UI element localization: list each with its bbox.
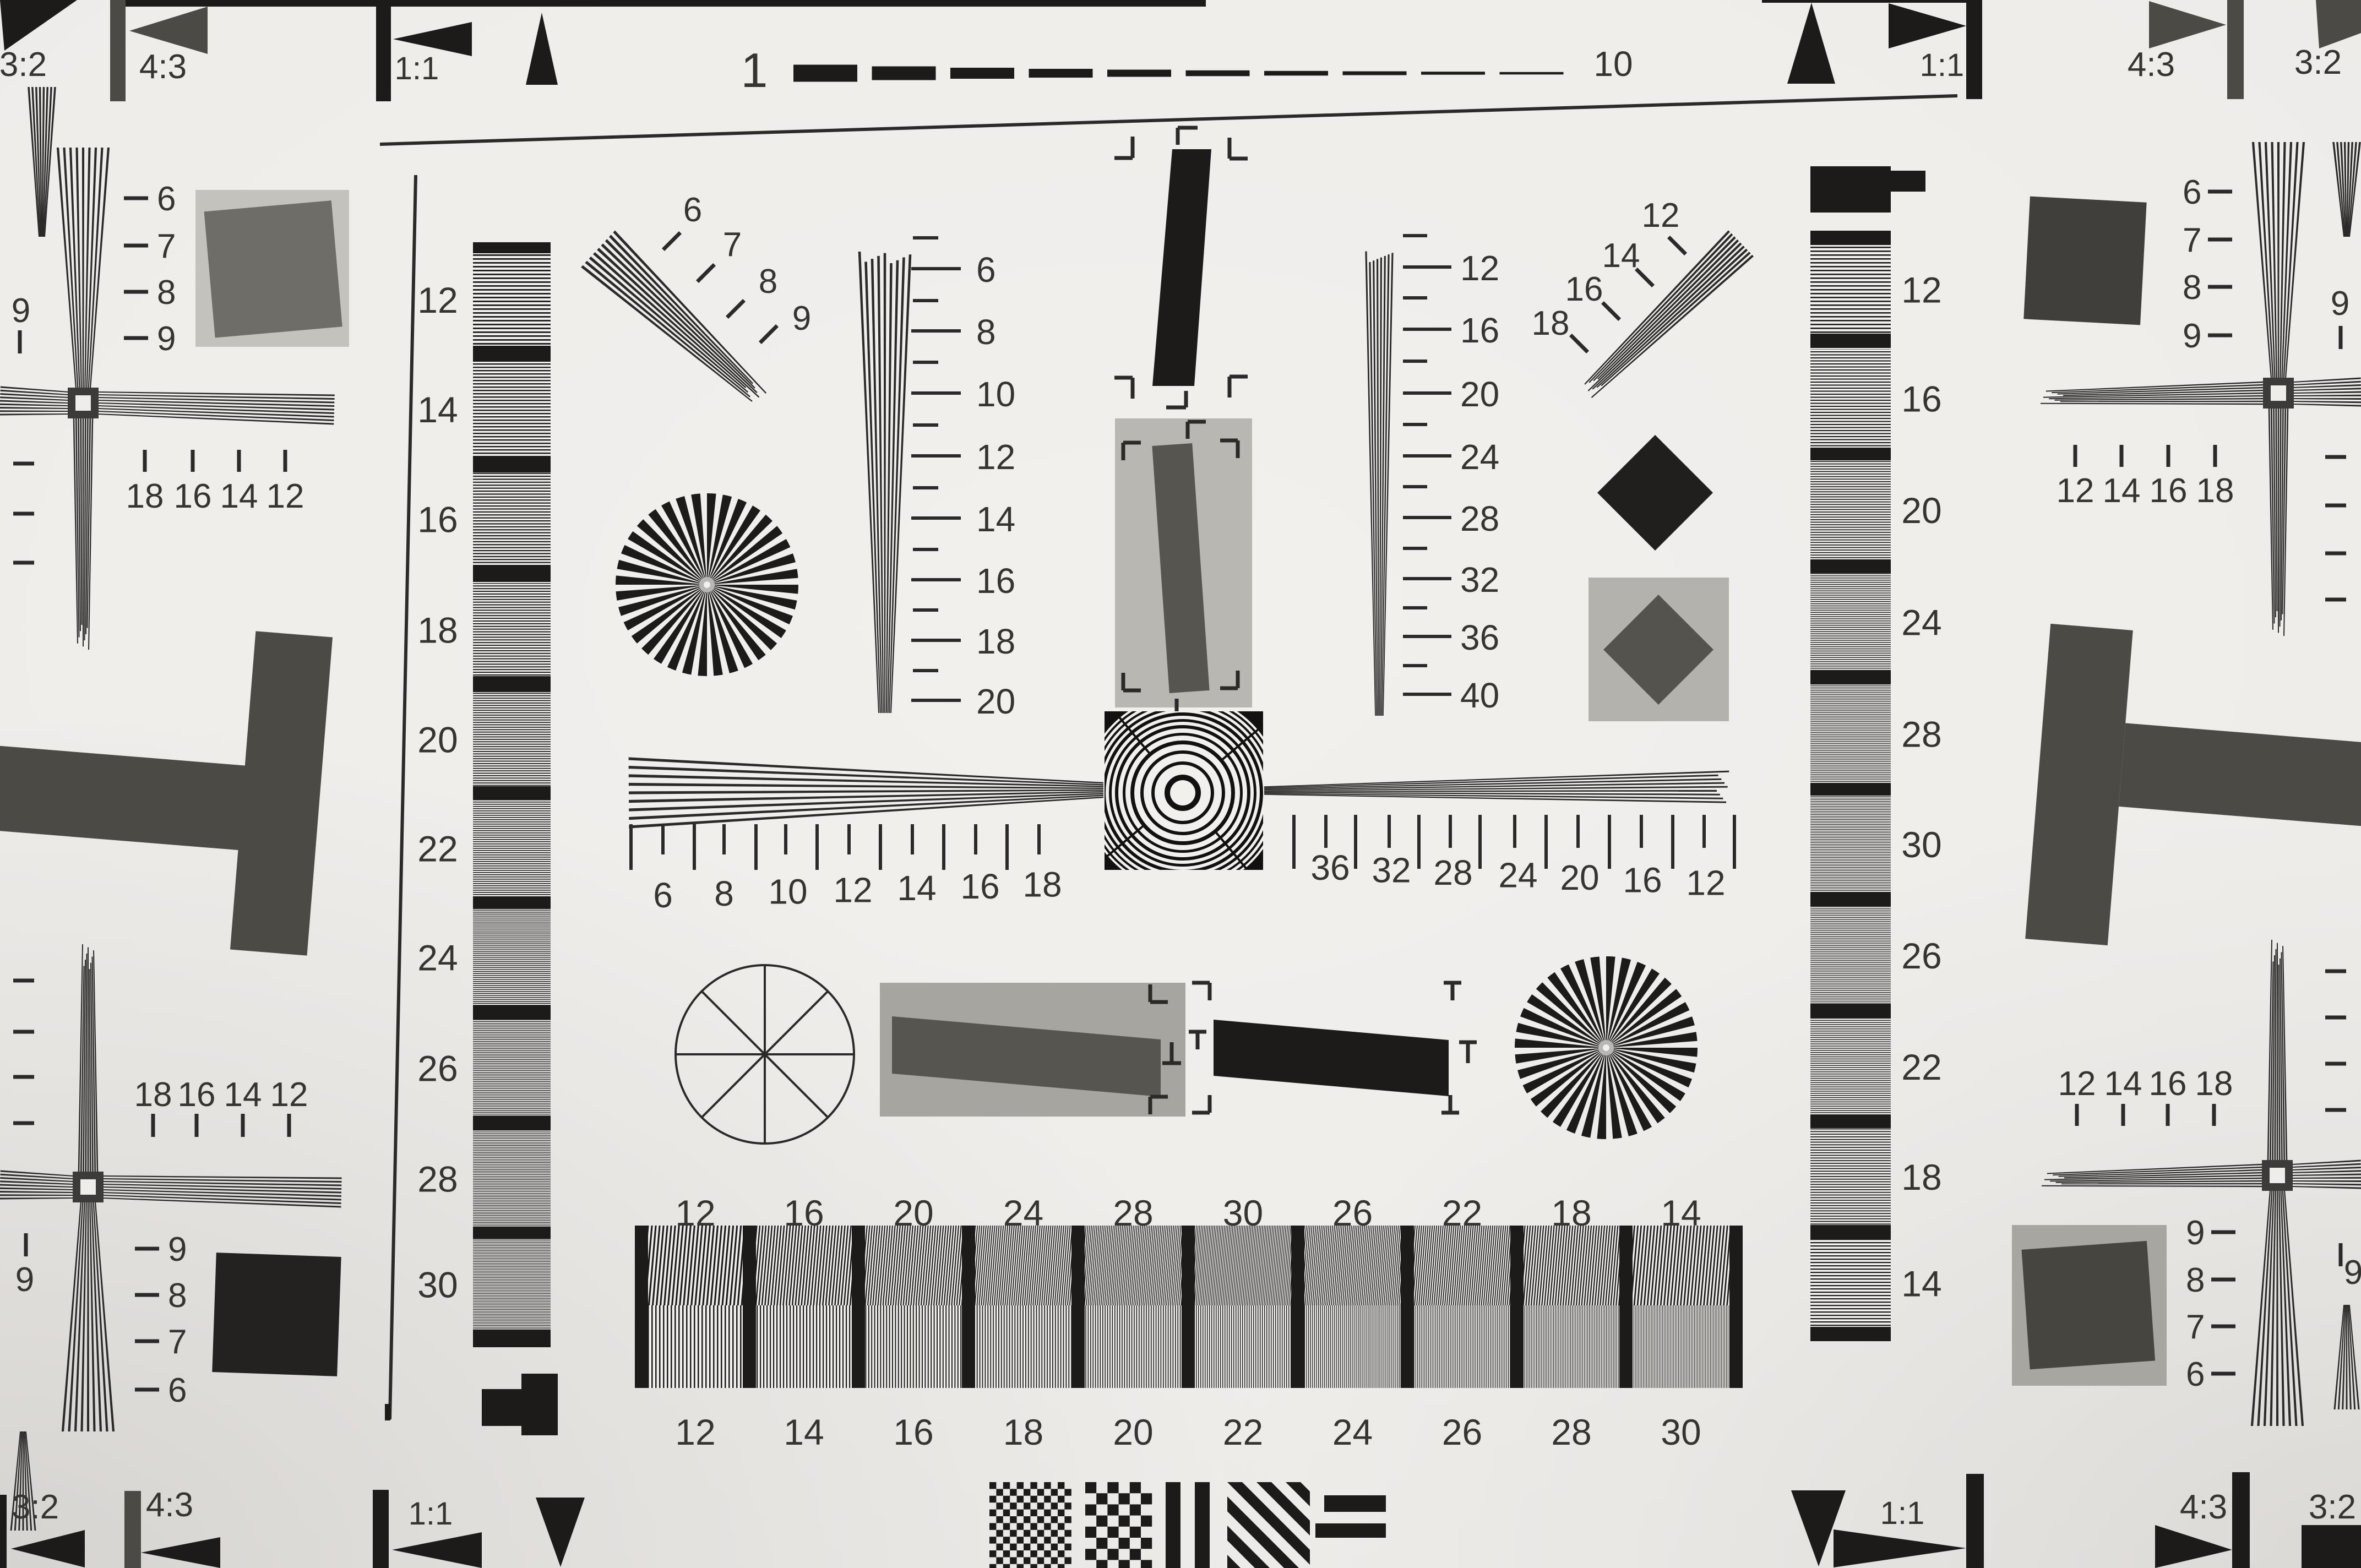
svg-text:16: 16 [784,1193,824,1233]
svg-text:18: 18 [1532,304,1570,342]
svg-text:6: 6 [653,875,673,915]
svg-text:4:3: 4:3 [146,1486,193,1524]
svg-text:6: 6 [683,191,702,229]
svg-text:9: 9 [12,292,30,330]
svg-text:1:1: 1:1 [409,1496,453,1532]
svg-text:12: 12 [270,1076,308,1114]
svg-text:3:2: 3:2 [2309,1488,2356,1526]
svg-text:6: 6 [2183,173,2201,211]
svg-text:4:3: 4:3 [2180,1488,2227,1526]
svg-text:9: 9 [15,1261,34,1299]
svg-text:20: 20 [1901,490,1941,531]
svg-text:26: 26 [417,1048,458,1089]
svg-text:8: 8 [2183,269,2201,307]
svg-text:16: 16 [1623,861,1662,900]
svg-text:1:1: 1:1 [1880,1495,1925,1531]
svg-text:26: 26 [1332,1193,1373,1233]
svg-text:12: 12 [976,437,1015,477]
svg-text:14: 14 [976,499,1015,539]
svg-text:22: 22 [417,829,458,869]
svg-text:18: 18 [2196,472,2234,510]
svg-text:14: 14 [897,868,936,908]
svg-text:20: 20 [1113,1412,1153,1452]
svg-text:28: 28 [417,1159,458,1200]
svg-text:8: 8 [2186,1261,2205,1299]
svg-text:9: 9 [792,300,811,337]
svg-text:18: 18 [1003,1412,1043,1452]
svg-text:18: 18 [134,1076,172,1114]
svg-text:30: 30 [1223,1193,1263,1233]
svg-text:10: 10 [1593,44,1633,84]
svg-text:14: 14 [224,1076,262,1114]
svg-text:14: 14 [220,477,258,515]
svg-text:6: 6 [168,1371,187,1409]
svg-text:16: 16 [2150,472,2188,510]
svg-text:24: 24 [417,938,458,978]
svg-text:40: 40 [1460,676,1499,715]
svg-text:12: 12 [1901,270,1941,311]
svg-text:7: 7 [157,227,176,265]
svg-text:8: 8 [714,874,734,913]
svg-text:36: 36 [1310,848,1350,888]
svg-text:28: 28 [1551,1412,1591,1452]
svg-text:18: 18 [1022,865,1062,905]
svg-text:16: 16 [174,477,212,515]
svg-text:18: 18 [2195,1065,2233,1103]
svg-text:12: 12 [2057,472,2095,510]
svg-text:10: 10 [976,374,1015,414]
svg-text:22: 22 [1442,1193,1482,1233]
svg-text:12: 12 [833,870,872,910]
svg-text:24: 24 [1498,856,1537,895]
svg-text:18: 18 [126,477,164,515]
svg-text:7: 7 [2183,221,2201,259]
svg-text:6: 6 [157,180,176,218]
svg-text:36: 36 [1460,618,1499,657]
svg-text:1: 1 [741,43,768,97]
svg-text:28: 28 [1460,499,1499,538]
svg-text:3:2: 3:2 [2294,43,2342,81]
svg-text:28: 28 [1901,714,1941,755]
svg-text:8: 8 [976,312,996,352]
svg-text:9: 9 [2186,1214,2205,1252]
svg-text:8: 8 [168,1277,187,1315]
svg-text:16: 16 [2149,1065,2187,1103]
svg-text:3:2: 3:2 [0,46,47,84]
svg-text:8: 8 [759,263,777,301]
svg-text:9: 9 [2183,317,2201,355]
svg-text:12: 12 [675,1412,715,1452]
svg-text:16: 16 [1460,311,1499,350]
svg-text:16: 16 [976,561,1015,601]
svg-text:16: 16 [417,499,458,540]
svg-text:14: 14 [417,389,458,430]
svg-text:14: 14 [2103,472,2141,510]
svg-text:32: 32 [1372,850,1411,890]
svg-text:14: 14 [1901,1264,1941,1304]
svg-text:3:2: 3:2 [12,1488,59,1526]
svg-text:7: 7 [168,1323,187,1361]
svg-text:12: 12 [417,280,458,320]
svg-text:24: 24 [1901,602,1941,643]
svg-text:26: 26 [1442,1412,1482,1452]
svg-text:7: 7 [2186,1308,2205,1346]
svg-text:12: 12 [1686,863,1725,902]
svg-text:20: 20 [976,682,1015,721]
svg-text:24: 24 [1332,1412,1373,1452]
svg-text:22: 22 [1223,1412,1263,1452]
svg-text:9: 9 [168,1231,187,1268]
svg-text:30: 30 [1661,1412,1701,1452]
svg-text:32: 32 [1460,560,1499,600]
svg-text:14: 14 [2104,1065,2142,1103]
svg-text:8: 8 [157,274,176,312]
svg-text:28: 28 [1113,1193,1153,1233]
svg-text:6: 6 [2186,1355,2205,1393]
svg-text:6: 6 [976,250,996,290]
svg-text:28: 28 [1433,853,1472,892]
svg-text:12: 12 [2058,1065,2096,1103]
svg-text:20: 20 [417,720,458,760]
svg-text:14: 14 [1661,1193,1701,1233]
svg-text:26: 26 [1901,935,1941,976]
svg-text:20: 20 [1560,858,1599,897]
svg-text:20: 20 [893,1193,933,1233]
svg-text:16: 16 [178,1076,216,1114]
svg-text:18: 18 [1551,1193,1591,1233]
svg-text:9: 9 [2344,1254,2361,1292]
svg-text:4:3: 4:3 [2128,46,2175,84]
svg-text:9: 9 [157,320,176,358]
svg-text:18: 18 [417,610,458,651]
svg-text:24: 24 [1003,1193,1043,1233]
svg-text:12: 12 [1460,248,1499,288]
svg-text:18: 18 [976,622,1015,661]
svg-text:30: 30 [417,1265,458,1305]
svg-text:12: 12 [266,477,304,515]
svg-text:12: 12 [675,1193,715,1233]
svg-text:1:1: 1:1 [395,51,439,86]
svg-text:16: 16 [893,1412,933,1452]
svg-text:9: 9 [2331,285,2349,323]
svg-text:16: 16 [1565,270,1603,308]
svg-text:30: 30 [1901,824,1941,865]
svg-text:14: 14 [1602,237,1640,275]
svg-text:24: 24 [1460,437,1499,477]
svg-text:16: 16 [1901,379,1941,420]
svg-text:12: 12 [1642,197,1680,235]
svg-text:16: 16 [960,867,999,906]
svg-text:20: 20 [1460,374,1499,414]
svg-text:18: 18 [1901,1157,1941,1197]
svg-text:10: 10 [768,872,807,912]
svg-text:7: 7 [723,226,742,264]
svg-text:1:1: 1:1 [1920,47,1965,83]
svg-text:4:3: 4:3 [139,48,187,86]
svg-text:14: 14 [784,1412,824,1452]
svg-text:22: 22 [1901,1047,1941,1087]
